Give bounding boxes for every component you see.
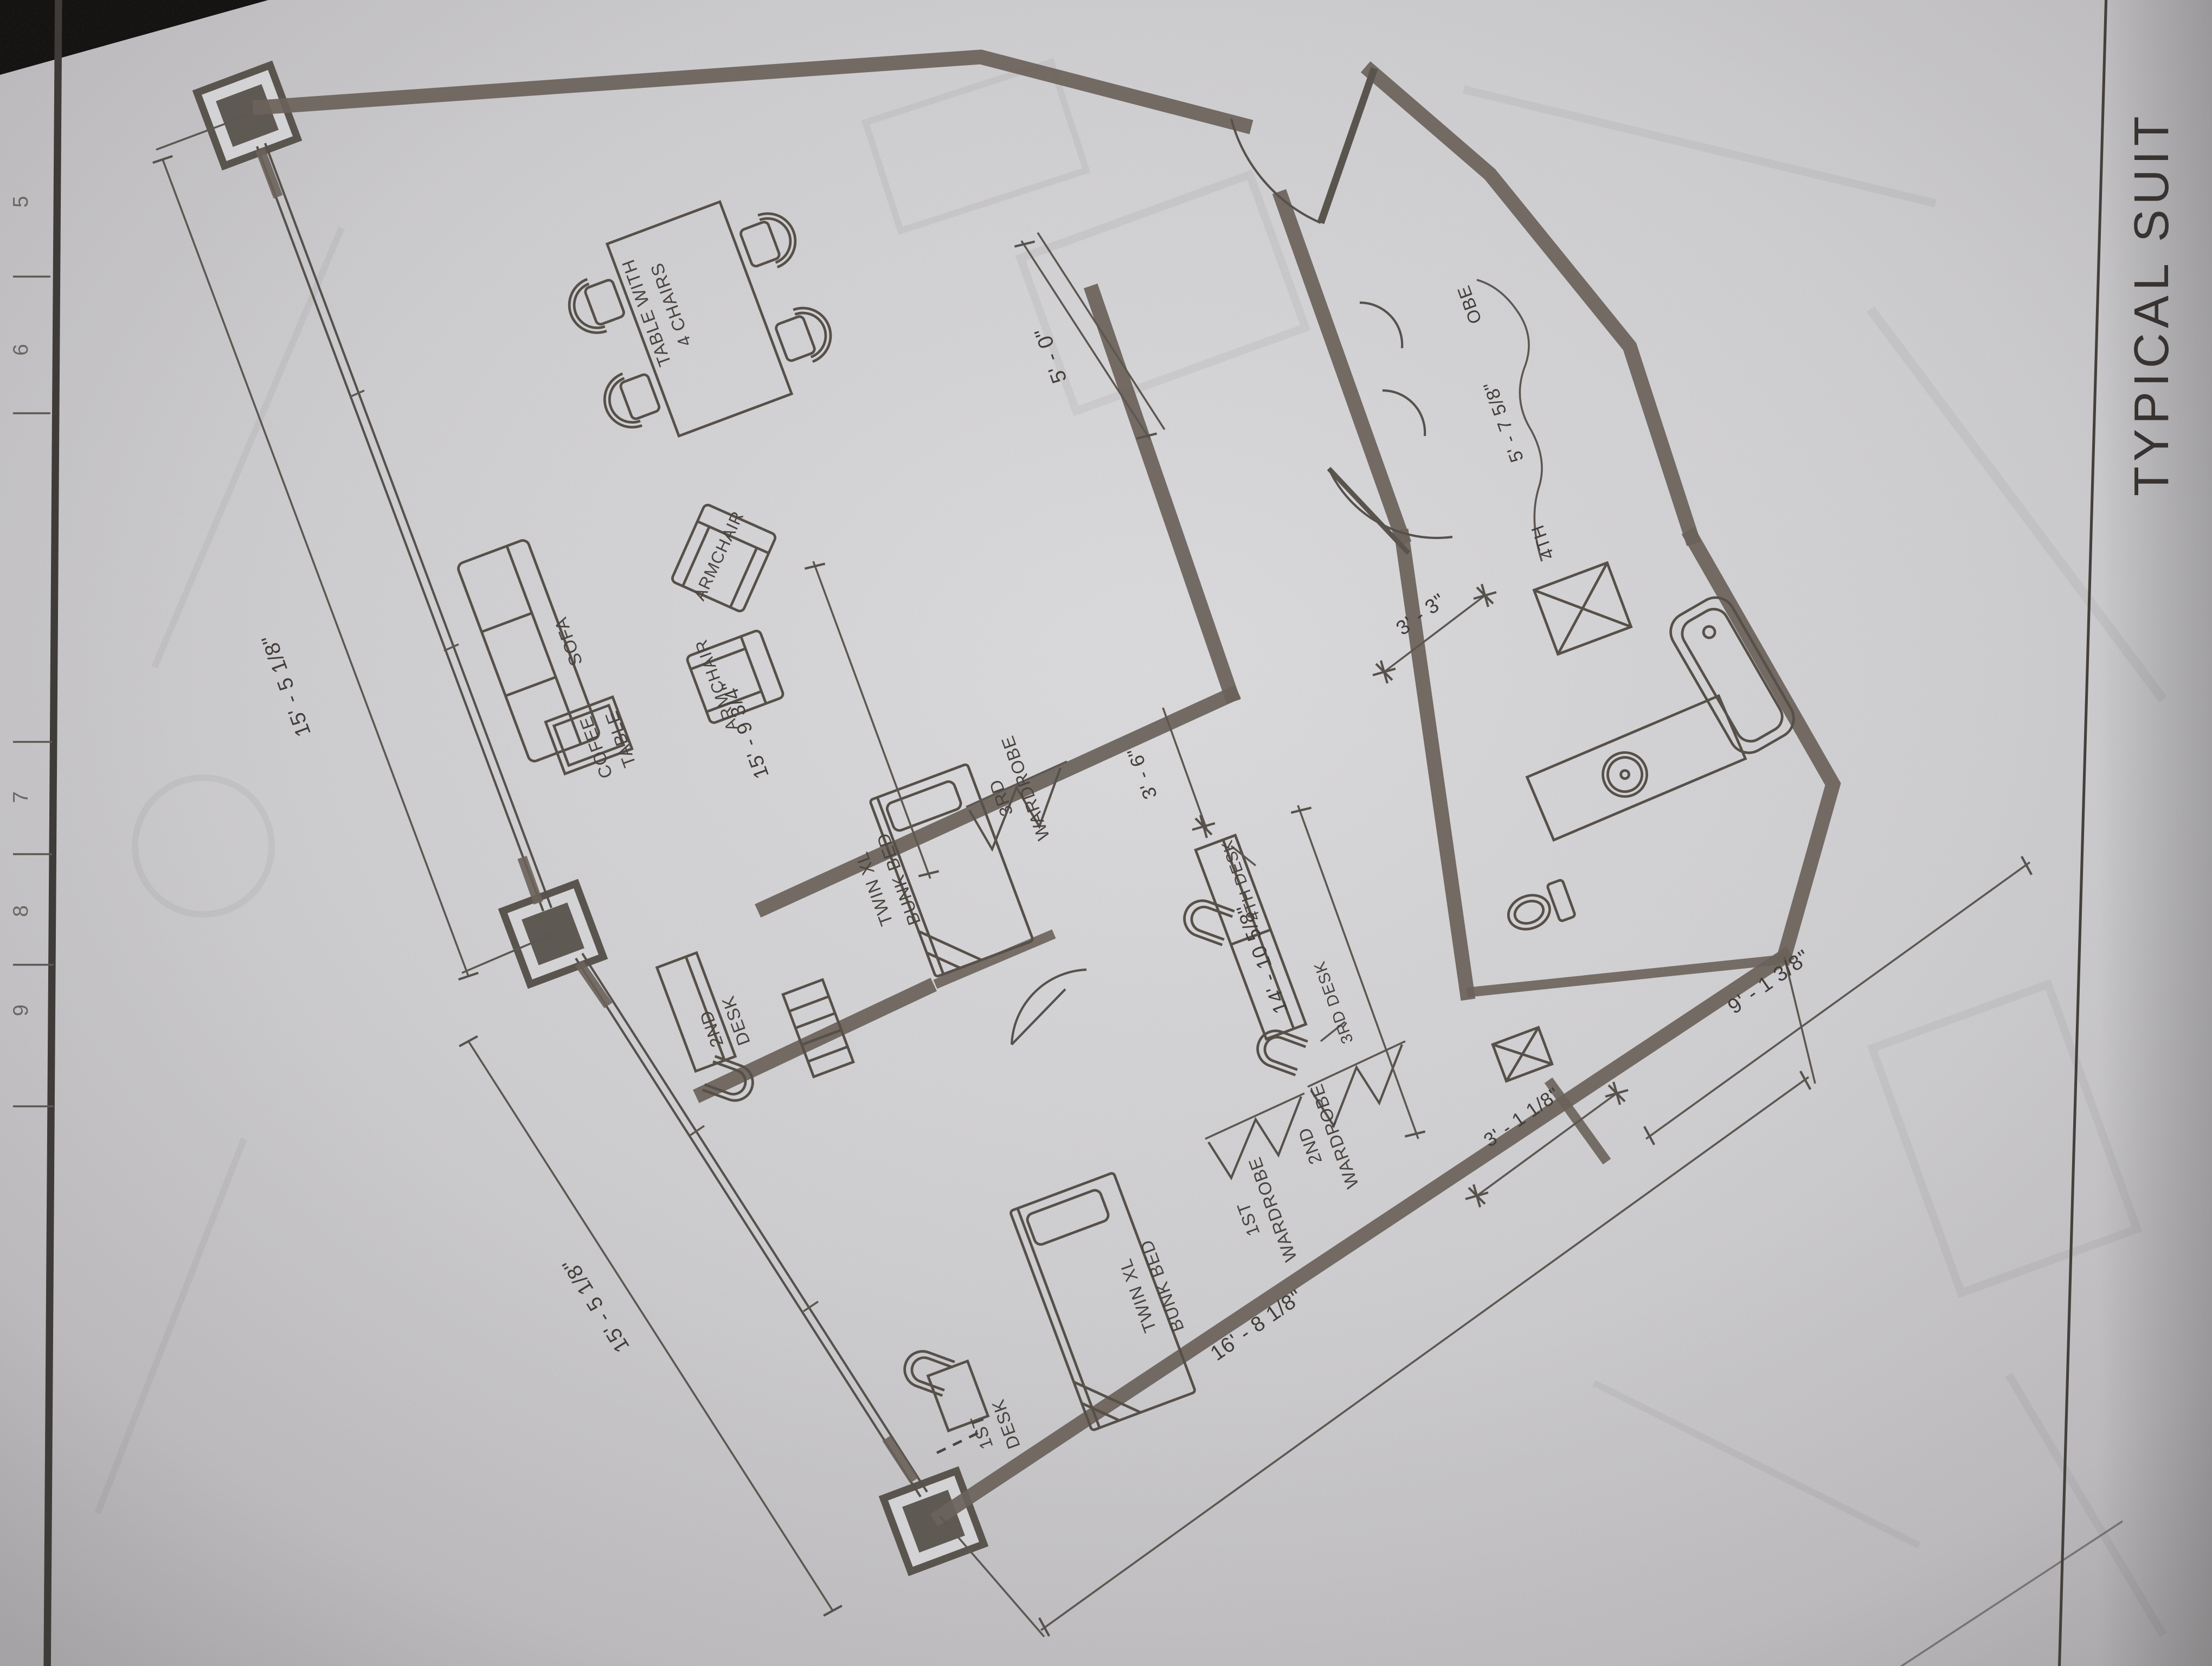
grid-number-8: 8: [9, 905, 33, 917]
grid-number-6: 6: [9, 344, 33, 356]
grid-number-9: 9: [9, 1004, 33, 1016]
grid-number-7: 7: [9, 791, 33, 803]
sheet-title: TYPICAL SUIT: [2125, 111, 2179, 496]
floor-plan-photo: 5 6 7 8 9 TYPICAL SUIT: [0, 0, 2212, 1666]
grid-number-5: 5: [9, 196, 33, 208]
